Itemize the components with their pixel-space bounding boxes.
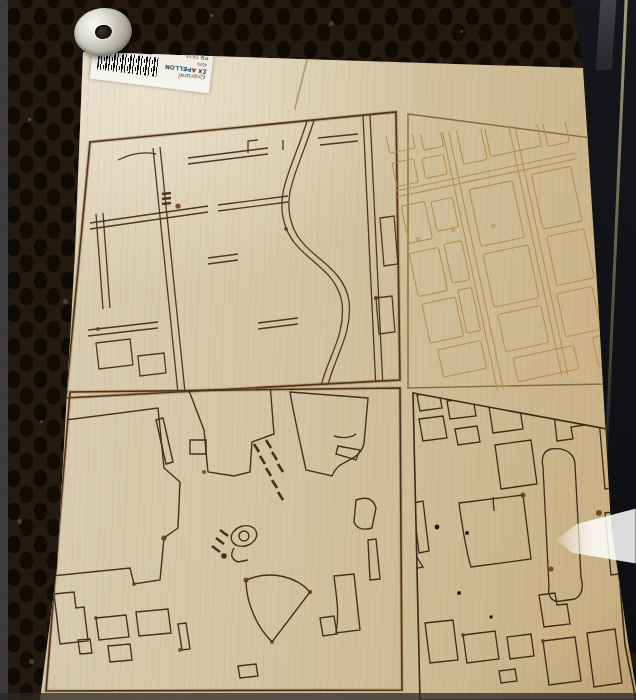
map-panel-top-left — [58, 98, 408, 406]
bottom-frame-strip — [0, 693, 636, 700]
map-panel-bottom-left — [38, 378, 410, 700]
plywood-board: Gravural ΣX APELLON 4020 PB 1616 37080 8… — [0, 0, 636, 700]
sticker-script-text: Gravural — [159, 72, 205, 81]
left-frame-strip — [0, 0, 8, 700]
photo-laser-cut-map-board: Gravural ΣX APELLON 4020 PB 1616 37080 8… — [0, 0, 636, 700]
map-panel-top-right — [398, 98, 610, 394]
washer-hole — [94, 24, 113, 40]
rail-corner-highlight — [596, 0, 617, 70]
rail-reflection-line — [603, 0, 628, 494]
